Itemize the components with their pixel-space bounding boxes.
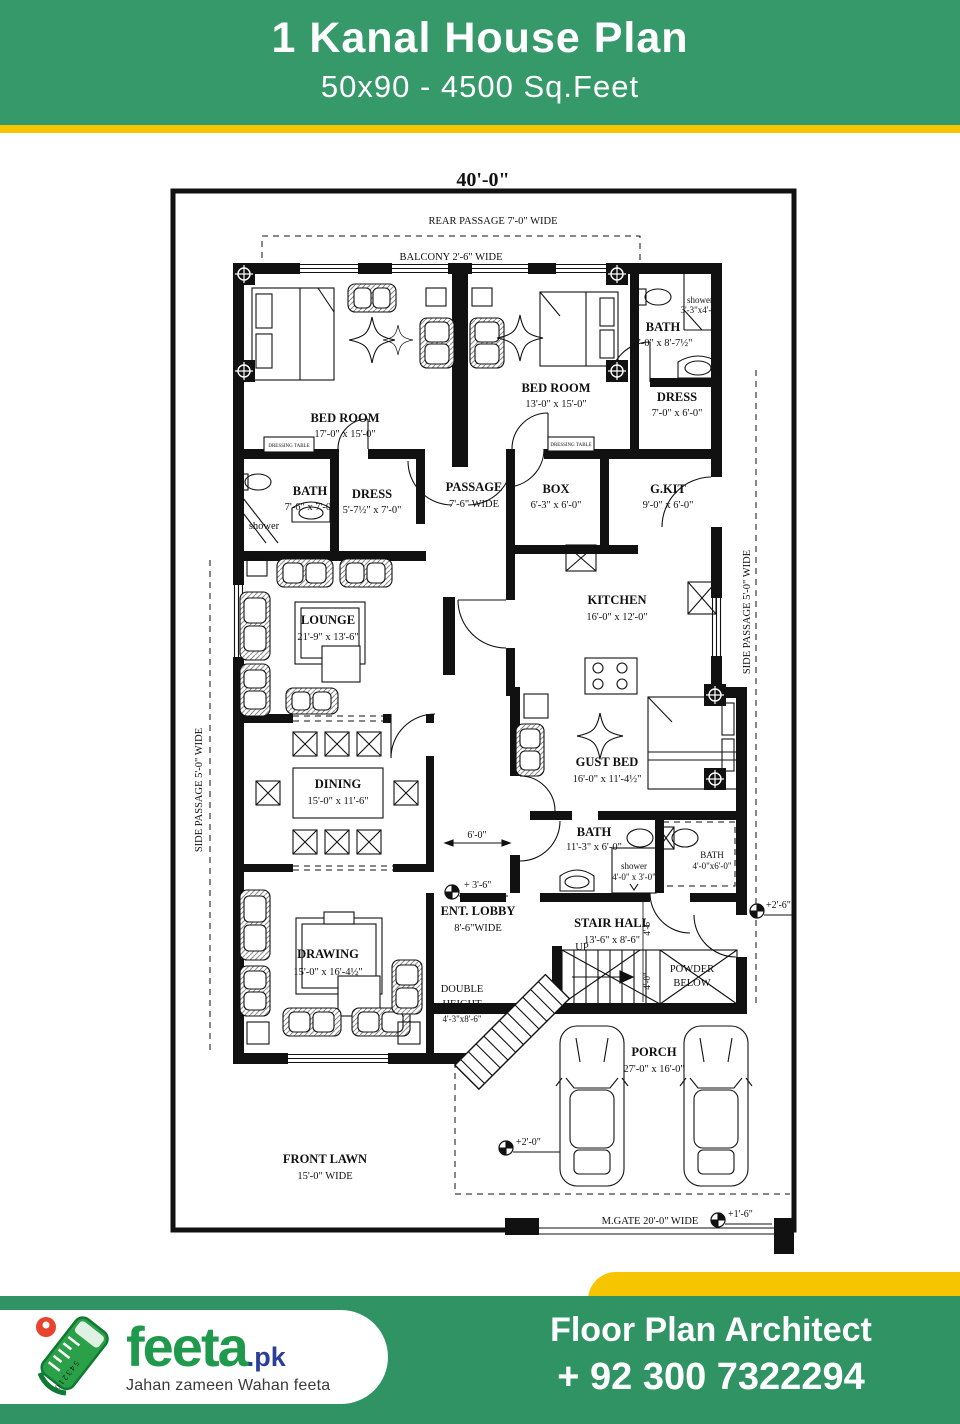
front-lawn-size: 15'-0" WIDE: [297, 1171, 352, 1182]
gkit-name: G.KIT: [650, 482, 686, 496]
dim-6-0: 6'-0": [467, 830, 486, 841]
contact-phone: + 92 300 7322294: [470, 1356, 952, 1399]
double-height-line1: DOUBLE: [441, 984, 484, 995]
poster-page: 1 Kanal House Plan 50x90 - 4500 Sq.Feet: [0, 0, 960, 1424]
header-divider: [0, 125, 960, 133]
gkit-size: 9'-0" x 6'-0": [643, 500, 694, 511]
page-title: 1 Kanal House Plan: [0, 0, 960, 63]
dining-size: 15'-0" x 11'-6": [308, 796, 369, 807]
main-gate-label: M.GATE 20'-0" WIDE: [602, 1216, 699, 1227]
ent-lobby-name: ENT. LOBBY: [441, 904, 516, 918]
dim-1-6: +1'-6": [728, 1209, 753, 1220]
kitchen-size: 16'-0" x 12'-0": [586, 612, 647, 623]
brand-tld: .pk: [247, 1342, 286, 1372]
dress-left-name: DRESS: [352, 487, 392, 501]
page-subtitle: 50x90 - 4500 Sq.Feet: [0, 69, 960, 105]
bath-mid-name: BATH: [577, 825, 612, 839]
top-dimension: 40'-0": [456, 169, 509, 191]
lounge-size: 21'-9" x 13'-6": [297, 632, 358, 643]
shower-mid-size: 4'-0" x 3'-0": [612, 872, 656, 882]
stair-hall-name: STAIR HALL: [574, 916, 650, 930]
dining-name: DINING: [315, 777, 362, 791]
side-passage-left-label: SIDE PASSAGE 5'-0" WIDE: [194, 728, 205, 852]
dressing-table-left-label: DRESSING TABLE: [268, 444, 309, 449]
gust-bed-name: GUST BED: [576, 755, 639, 769]
dim-4-6: 4'-6": [642, 918, 652, 936]
car-left: [556, 1026, 628, 1186]
dressing-table-right-label: DRESSING TABLE: [550, 443, 591, 448]
drawing-name: DRAWING: [297, 947, 359, 961]
gust-bed-size: 16'-0" x 11'-4½": [573, 774, 642, 785]
shower-left-label: shower: [249, 521, 280, 532]
shower-top-size: 3'-3"x4'-0": [680, 305, 719, 315]
bath-right-name: BATH: [700, 850, 724, 860]
porch-size: 27'-0" x 16'-0": [623, 1064, 684, 1075]
brand-logo: 5 4 3 2 1 0 feeta.pk Jahan zameen Wahan …: [0, 1310, 388, 1404]
floor-plan: 40'-0" REAR PASSAGE 7'-0" WIDE BALCONY 2…: [0, 133, 960, 1272]
bath-right-size: 4'-0"x6'-0": [692, 861, 731, 871]
porch-name: PORCH: [631, 1045, 676, 1059]
bedroom1-name: BED ROOM: [310, 411, 379, 425]
contact-heading: Floor Plan Architect: [470, 1311, 952, 1350]
dim-2-0: +2'-0": [516, 1137, 541, 1148]
dim-3-6: + 3'-6": [464, 880, 491, 891]
dim-4-0: 4'-0": [642, 972, 652, 990]
side-passage-right-label: SIDE PASSAGE 5'-0" WIDE: [742, 550, 753, 674]
kitchen-name: KITCHEN: [587, 593, 646, 607]
car-right: [680, 1026, 752, 1186]
dress-top-name: DRESS: [657, 390, 697, 404]
up-label: UP: [575, 942, 589, 953]
bath-top-name: BATH: [646, 320, 681, 334]
feeta-logo-icon: 5 4 3 2 1 0: [28, 1311, 116, 1404]
stair-hall-size: 13'-6" x 8'-6": [584, 935, 640, 946]
front-lawn-name: FRONT LAWN: [283, 1152, 367, 1166]
footer: 5 4 3 2 1 0 feeta.pk Jahan zameen Wahan …: [0, 1272, 960, 1424]
powder-line1: POWDER: [670, 964, 714, 975]
bedroom2-size: 13'-0" x 15'-0": [525, 399, 586, 410]
box-size: 6'-3" x 6'-0": [531, 500, 582, 511]
passage-size: 7'-6" WIDE: [449, 499, 499, 510]
bath-top-size: 7'-0" x 8'-7½": [634, 338, 693, 349]
dim-2-6: +2'-6": [766, 900, 791, 911]
balcony-label: BALCONY 2'-6" WIDE: [399, 252, 502, 263]
bath-left-size: 7'-6" x 7'-0": [285, 502, 336, 513]
bath-mid-size: 11'-3" x 6'-0": [566, 842, 622, 853]
shower-mid-name: shower: [621, 861, 647, 871]
bedroom1-size: 17'-0" x 15'-0": [314, 429, 375, 440]
header-banner: 1 Kanal House Plan 50x90 - 4500 Sq.Feet: [0, 0, 960, 125]
rear-passage-label: REAR PASSAGE 7'-0" WIDE: [429, 216, 558, 227]
ent-lobby-size: 8'-6"WIDE: [454, 923, 502, 934]
dress-left-size: 5'-7½" x 7'-0": [343, 505, 402, 516]
bath-left-name: BATH: [293, 484, 328, 498]
brand-tagline: Jahan zameen Wahan feeta: [126, 1377, 330, 1395]
shower-top-name: shower: [687, 295, 713, 305]
drawing-size: 15'-0" x 16'-4½": [293, 967, 362, 978]
double-height-line3: 4'-3"x8'-6": [442, 1014, 481, 1024]
brand-name: feeta: [126, 1315, 247, 1378]
lounge-name: LOUNGE: [301, 613, 355, 627]
box-name: BOX: [542, 482, 569, 496]
passage-name: PASSAGE: [446, 480, 503, 494]
dress-top-size: 7'-0" x 6'-0": [652, 408, 703, 419]
bedroom2-name: BED ROOM: [521, 381, 590, 395]
powder-line2: BELOW: [673, 978, 710, 989]
contact-block: Floor Plan Architect + 92 300 7322294: [470, 1300, 952, 1410]
floor-plan-svg: 40'-0" REAR PASSAGE 7'-0" WIDE BALCONY 2…: [0, 133, 960, 1272]
double-height-line2: HEIGHT: [442, 999, 482, 1010]
